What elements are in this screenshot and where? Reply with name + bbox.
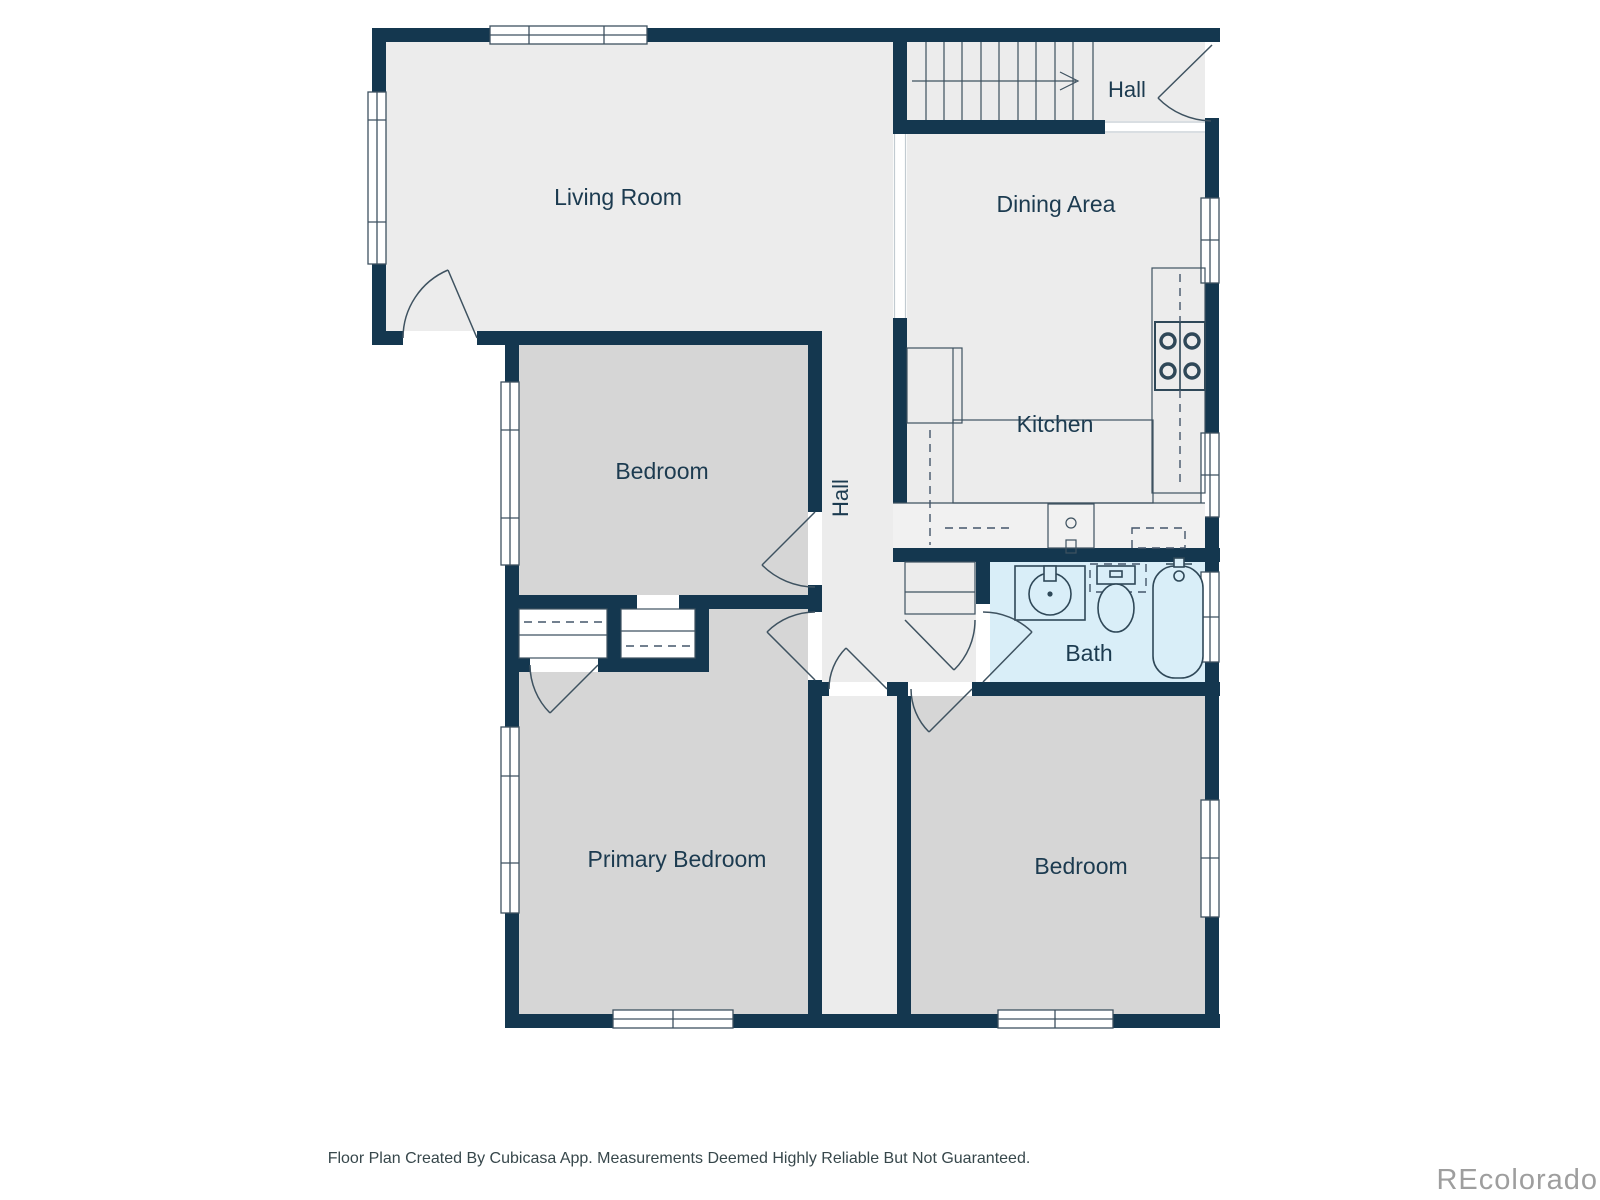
window-living-left [368,92,386,264]
window-primary-left [501,727,519,913]
room-label-bath: Bath [1065,640,1112,666]
window-bedroom-lower-right [1201,800,1219,917]
bathroom-sink [1015,566,1085,620]
kitchen-counter-bottom [893,503,1205,548]
room-label-primary-bedroom: Primary Bedroom [588,846,767,872]
window-dining-right [1201,198,1219,283]
window-bedroom-lower-bottom [998,1010,1113,1028]
room-label-hall-upper: Hall [1108,77,1146,102]
room-label-bedroom-mid: Bedroom [615,458,708,484]
bedroom-lower-door-gap [908,682,972,696]
stove [1155,322,1205,390]
window-bedroom-mid-left [501,382,519,565]
living-entry-gap [403,331,477,345]
room-label-dining-area: Dining Area [997,191,1116,217]
hall-dining-threshold [1105,121,1205,133]
watermark: REcolorado [1436,1164,1598,1196]
lower-corridor-floor [822,696,897,1014]
bedroom-mid-door-gap [808,512,822,585]
footer-disclaimer: Floor Plan Created By Cubicasa App. Meas… [328,1150,1031,1167]
closet-right-opening [637,595,679,609]
closet-right [621,609,695,658]
closet-left [519,609,607,658]
primary-door-gap [808,612,822,680]
floor-plan-page: Living Room Hall Dining Area Kitchen Hal… [0,0,1600,1200]
room-label-bedroom-lower: Bedroom [1034,853,1127,879]
floor-plan-svg: Living Room Hall Dining Area Kitchen Hal… [0,0,1600,1200]
room-label-living-room: Living Room [554,184,682,210]
window-primary-bottom [613,1010,733,1028]
front-door-gap [1205,42,1219,118]
bathtub [1153,558,1203,678]
bath-door-gap [976,604,990,682]
corridor-door-gap [829,682,887,696]
closet-left-door-gap [530,658,598,672]
room-label-hall-center: Hall [828,479,853,517]
window-living-top [490,26,647,44]
room-label-kitchen: Kitchen [1017,411,1094,437]
